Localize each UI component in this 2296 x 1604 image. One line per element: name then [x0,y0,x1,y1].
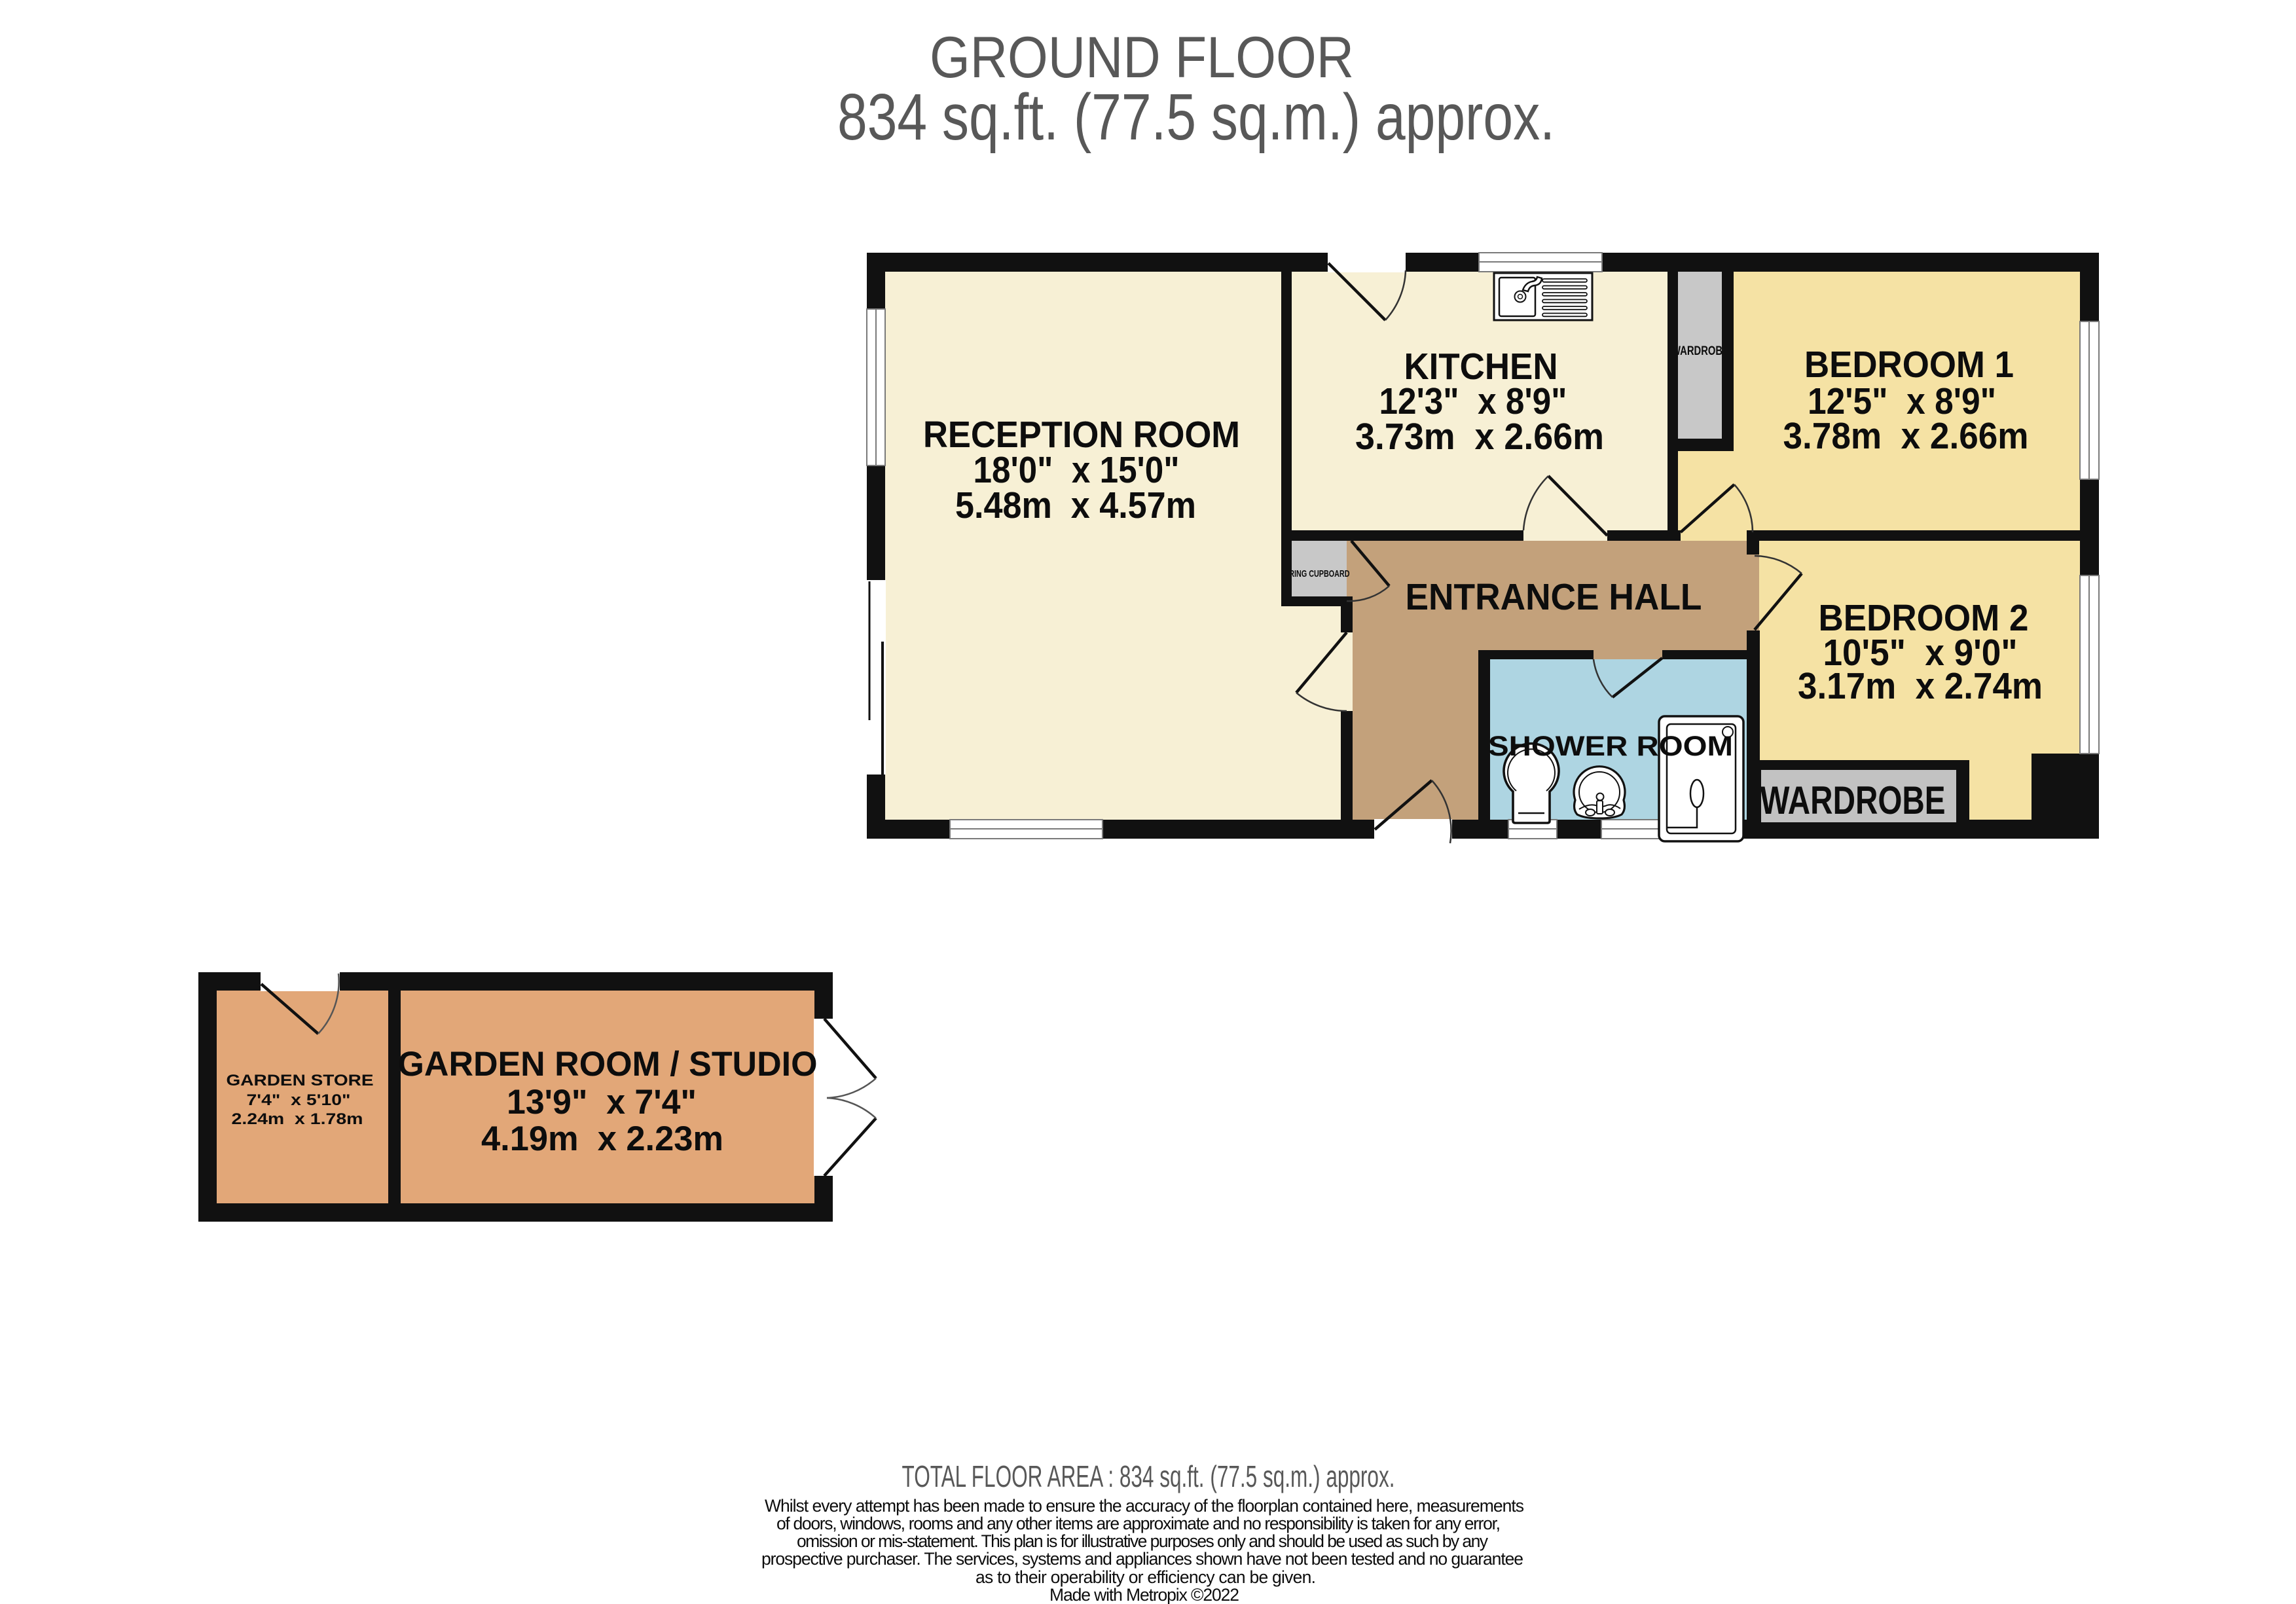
svg-text:prospective purchaser. The ser: prospective purchaser. The services, sys… [761,1549,1523,1569]
svg-text:13'9" x 7'4": 13'9" x 7'4" [507,1083,697,1121]
svg-text:5.48m x 4.57m: 5.48m x 4.57m [955,484,1196,526]
svg-text:Made with Metropix ©2022: Made with Metropix ©2022 [1049,1585,1239,1604]
svg-text:ENTRANCE HALL: ENTRANCE HALL [1406,576,1702,618]
svg-text:3.78m x 2.66m: 3.78m x 2.66m [1783,415,2029,457]
svg-text:omission or mis-statement. Thi: omission or mis-statement. This plan is … [797,1531,1489,1551]
svg-text:7'4" x 5'10": 7'4" x 5'10" [247,1091,351,1109]
svg-text:GARDEN ROOM / STUDIO: GARDEN ROOM / STUDIO [398,1045,818,1084]
svg-text:AIRING CUPBOARD: AIRING CUPBOARD [1283,568,1350,579]
svg-text:3.17m x 2.74m: 3.17m x 2.74m [1798,665,2043,707]
svg-text:SHOWER ROOM: SHOWER ROOM [1488,731,1733,762]
svg-text:GARDEN STORE: GARDEN STORE [227,1072,374,1089]
svg-text:GROUND FLOOR: GROUND FLOOR [930,24,1354,90]
svg-text:3.73m x 2.66m: 3.73m x 2.66m [1355,416,1604,458]
svg-text:TOTAL FLOOR AREA : 834 sq.ft.: TOTAL FLOOR AREA : 834 sq.ft. (77.5 sq.m… [902,1459,1395,1493]
svg-text:WARDROBE: WARDROBE [1671,344,1729,358]
svg-text:834 sq.ft. (77.5 sq.m.) approx: 834 sq.ft. (77.5 sq.m.) approx. [837,81,1555,154]
svg-text:of doors, windows, rooms and a: of doors, windows, rooms and any other i… [776,1514,1501,1533]
svg-text:2.24m x 1.78m: 2.24m x 1.78m [232,1110,363,1128]
svg-text:BEDROOM 1: BEDROOM 1 [1804,344,2014,386]
svg-text:WARDROBE: WARDROBE [1760,778,1946,822]
svg-text:4.19m x 2.23m: 4.19m x 2.23m [481,1120,723,1158]
svg-text:as to their operability or eff: as to their operability or efficiency ca… [975,1567,1316,1587]
svg-text:Whilst every attempt has been: Whilst every attempt has been made to en… [765,1496,1524,1516]
